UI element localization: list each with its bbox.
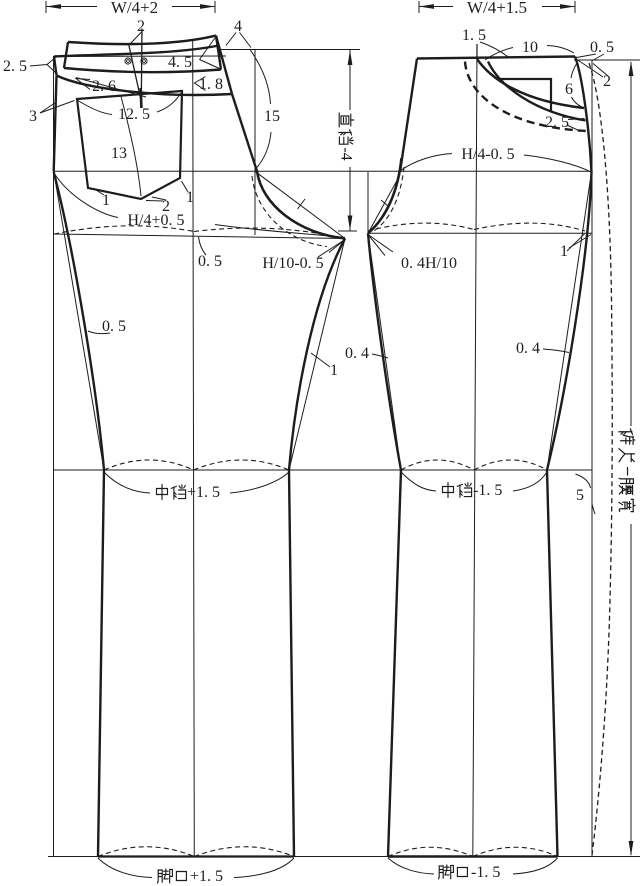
svg-text:-1. 5: -1. 5 [473,482,502,499]
svg-text:2. 5: 2. 5 [545,114,569,131]
svg-text:H/4-0. 5: H/4-0. 5 [461,146,514,163]
svg-text:5: 5 [576,487,584,504]
svg-text:1: 1 [330,362,338,379]
svg-text:0. 4: 0. 4 [516,340,540,357]
svg-text:H/10-0. 5: H/10-0. 5 [262,255,323,272]
svg-text:4. 5: 4. 5 [168,54,192,71]
svg-text:0. 5: 0. 5 [102,318,126,335]
svg-text:13: 13 [111,145,127,162]
svg-text:15: 15 [264,108,280,125]
svg-text:1: 1 [560,243,568,260]
svg-text:0. 4: 0. 4 [345,345,369,362]
svg-text:10: 10 [522,39,538,56]
svg-text:2. 5: 2. 5 [3,58,27,75]
svg-text:-4: -4 [338,147,355,160]
svg-text:0. 5: 0. 5 [590,39,614,56]
svg-text:1. 5: 1. 5 [462,27,486,44]
svg-text:2. 6: 2. 6 [92,78,116,95]
svg-text:12. 5: 12. 5 [118,106,150,123]
svg-text:6: 6 [565,81,573,98]
svg-text:+1. 5: +1. 5 [187,484,220,501]
svg-text:0. 4H/10: 0. 4H/10 [401,255,457,272]
svg-text:W/4+1.5: W/4+1.5 [467,0,527,17]
svg-text:H/4+0. 5: H/4+0. 5 [127,212,184,229]
svg-text:0. 5: 0. 5 [198,253,222,270]
svg-text:4: 4 [234,18,242,35]
svg-text:W/4+2: W/4+2 [111,0,158,17]
svg-text:3: 3 [29,108,37,125]
svg-text:+1. 5: +1. 5 [190,868,223,885]
svg-text:-1. 5: -1. 5 [471,864,500,881]
